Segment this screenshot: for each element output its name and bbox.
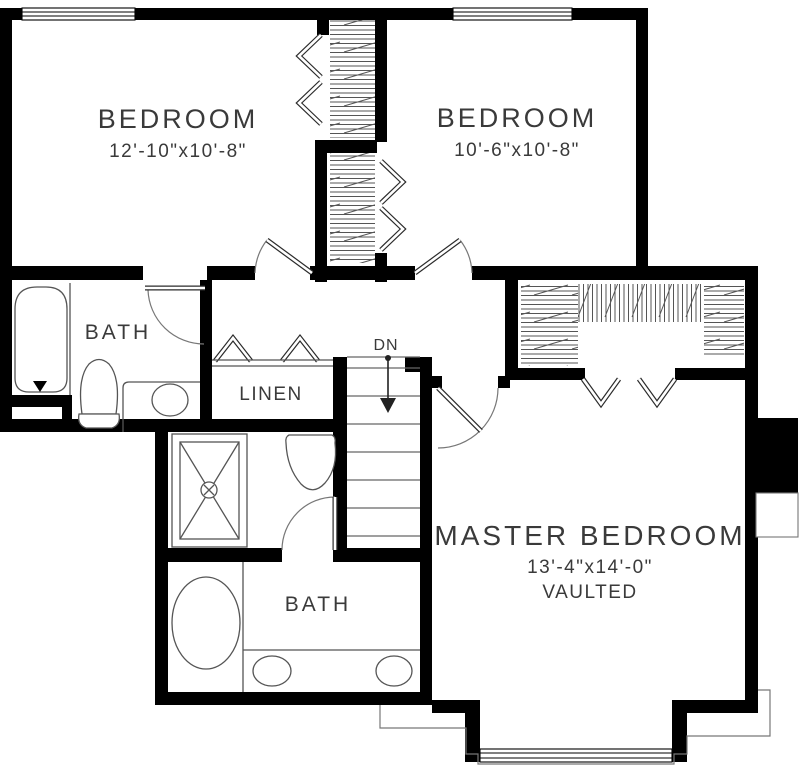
wall <box>505 280 518 380</box>
hall-bath-label: BATH <box>85 321 151 344</box>
stair-down-arrow <box>380 355 396 413</box>
wall <box>0 419 347 432</box>
bedroom2-label: BEDROOM <box>437 103 598 133</box>
walkin-closet-hatch-left <box>521 284 578 366</box>
bathtub-icon <box>15 287 67 392</box>
wall <box>636 8 648 280</box>
door-hall-bath <box>145 288 205 344</box>
wall <box>315 140 377 153</box>
swing-doors <box>145 240 498 550</box>
master-bath-fixtures <box>172 434 420 692</box>
window-bedroom1 <box>22 8 135 20</box>
bifold-door-icon <box>583 379 675 404</box>
door-bedroom2 <box>415 240 472 273</box>
wall <box>207 266 255 280</box>
sink-icon <box>376 656 412 686</box>
bifold-door-icon <box>381 161 403 250</box>
wall <box>155 432 168 705</box>
wall <box>758 418 798 493</box>
wall <box>62 395 72 421</box>
wall <box>672 700 758 713</box>
wall <box>315 140 327 282</box>
wall <box>745 266 758 713</box>
wall <box>0 8 12 432</box>
wall <box>155 692 432 705</box>
wall <box>375 8 387 142</box>
sink-icon <box>253 656 291 686</box>
wall <box>155 548 282 562</box>
wall <box>420 357 432 705</box>
floor-plan-drawing: BEDROOM 12'-10"x10'-8" BEDROOM 10'-6"x10… <box>0 0 800 765</box>
door-master-bedroom <box>438 388 498 448</box>
wall <box>432 376 442 388</box>
bathtub-icon <box>172 577 240 669</box>
sink-icon <box>152 384 188 416</box>
bifold-door-icon <box>215 338 318 361</box>
closet-shelf-hatch-bedroom1 <box>330 20 375 138</box>
bifold-door-icon <box>299 35 321 124</box>
wall <box>0 395 72 407</box>
wall <box>335 548 432 562</box>
hall-bath-fixtures <box>15 283 200 432</box>
master-bedroom-label: MASTER BEDROOM <box>434 520 745 551</box>
wall <box>310 266 415 280</box>
walkin-closet-hatch-top <box>578 284 704 322</box>
floor-plan: BEDROOM 12'-10"x10'-8" BEDROOM 10'-6"x10… <box>0 0 800 765</box>
toilet-icon <box>79 360 120 429</box>
door-master-bath <box>282 497 335 550</box>
bifold-doors <box>215 35 675 404</box>
wall <box>675 368 758 380</box>
bedroom1-label: BEDROOM <box>98 104 259 134</box>
master-bath-label: BATH <box>285 593 351 616</box>
wall <box>135 8 453 20</box>
bedroom2-dimensions: 10'-6"x10'-8" <box>454 140 580 161</box>
closet-shelf-hatch-bedroom2 <box>330 153 375 263</box>
wall <box>498 376 510 388</box>
stairs <box>347 355 420 536</box>
wall <box>200 280 212 432</box>
master-bedroom-dimensions: 13'-4"x14'-0" <box>527 557 653 578</box>
bedroom1-dimensions: 12'-10"x10'-8" <box>109 141 247 162</box>
shower-icon <box>172 434 247 547</box>
window-master-side <box>756 493 798 537</box>
window-bedroom2 <box>453 8 572 20</box>
toilet-icon <box>286 435 336 490</box>
stair-treads <box>347 357 420 536</box>
wall <box>317 8 329 35</box>
bay-window-master <box>480 749 672 762</box>
wall <box>472 266 758 280</box>
linen-label: LINEN <box>239 384 302 405</box>
wall <box>505 368 585 380</box>
master-bedroom-note: VAULTED <box>542 582 637 603</box>
wall <box>432 700 480 713</box>
wall <box>0 266 143 280</box>
walkin-closet-hatch-right <box>704 284 744 358</box>
stairs-down-label: DN <box>373 337 398 354</box>
door-bedroom1 <box>255 240 312 273</box>
